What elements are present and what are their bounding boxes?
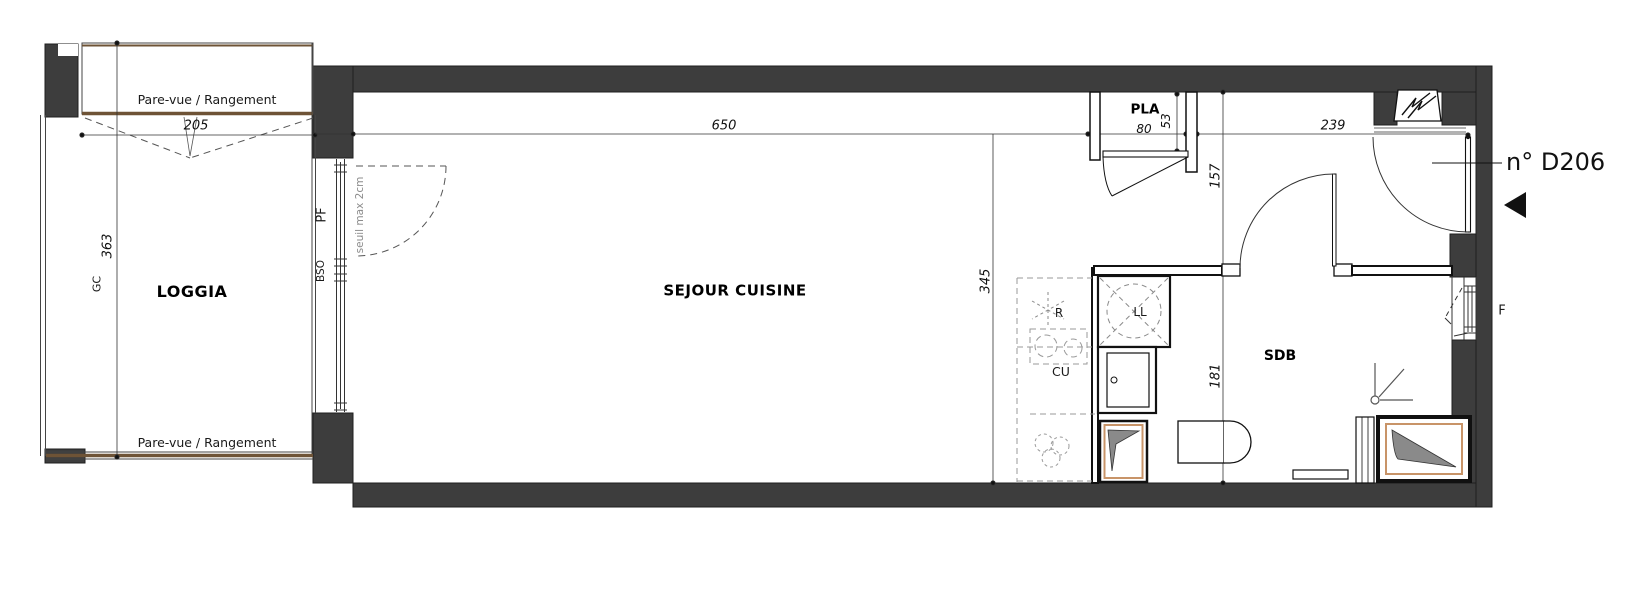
cooktop-label: CU bbox=[1052, 366, 1070, 379]
room-sdb: SDB bbox=[1264, 349, 1296, 363]
wall-right-outer bbox=[1476, 66, 1492, 507]
dim-sejour-depth: 345 bbox=[980, 269, 993, 294]
entry-door bbox=[1373, 128, 1526, 232]
dim-pla-depth: 53 bbox=[1160, 113, 1172, 128]
pf-window bbox=[334, 159, 347, 412]
wall-pillar-left-bottom bbox=[313, 413, 353, 483]
shower-valve-icon bbox=[1371, 363, 1413, 404]
entry-door-arc bbox=[1373, 137, 1468, 232]
parevue-bottom-label: Pare-vue / Rangement bbox=[138, 437, 277, 450]
wall-pillar-left-top bbox=[313, 66, 353, 158]
washbasin-inner bbox=[1107, 353, 1149, 407]
plan-drawing bbox=[0, 0, 1630, 589]
window-f bbox=[1445, 277, 1476, 340]
toilet-bowl bbox=[1224, 421, 1251, 463]
cooktop-burner-small bbox=[1064, 339, 1082, 357]
window-f-label: F bbox=[1498, 305, 1505, 318]
wall-bottom bbox=[353, 483, 1492, 507]
seuil-label: seuil max 2cm bbox=[355, 177, 366, 254]
dim-loggia-depth: 363 bbox=[102, 234, 115, 259]
sdb-door-leaf bbox=[1333, 174, 1337, 266]
pla-wall-left bbox=[1090, 92, 1100, 160]
dim-sejour-width: 650 bbox=[712, 120, 737, 133]
room-sejour-cuisine: SEJOUR CUISINE bbox=[663, 284, 806, 299]
washer-label: LL bbox=[1133, 306, 1146, 318]
electrical-panel-icon bbox=[1394, 90, 1441, 121]
pf-door-swing bbox=[356, 166, 446, 256]
sdb-door-arc bbox=[1240, 174, 1334, 268]
entry-door-hinge bbox=[1466, 135, 1470, 139]
fridge-label: R bbox=[1055, 307, 1063, 319]
sdb-door-jamb-left bbox=[1222, 264, 1240, 276]
sdb-wall-north-east bbox=[1352, 266, 1452, 275]
bso-label: BSO bbox=[316, 260, 327, 282]
pla-door-open bbox=[1112, 157, 1188, 196]
floor-plan: Pare-vue / Rangement 205 363 GC LOGGIA P… bbox=[0, 0, 1630, 589]
wall-stub bbox=[1356, 417, 1374, 483]
pf-label: PF bbox=[316, 207, 329, 222]
room-loggia: LOGGIA bbox=[157, 284, 228, 300]
wall-niche-right bbox=[1442, 92, 1476, 125]
sdb-door-jamb-right bbox=[1334, 264, 1352, 276]
entrance-arrow-icon bbox=[1504, 192, 1526, 218]
sdb-fixtures bbox=[1098, 276, 1470, 483]
toilet-tank bbox=[1178, 421, 1224, 463]
sdb-door bbox=[1240, 174, 1336, 268]
dim-entry-width: 239 bbox=[1321, 120, 1346, 133]
cooktop-burner-large bbox=[1035, 335, 1057, 357]
entry-door-leaf bbox=[1466, 137, 1471, 232]
dim-loggia-width: 205 bbox=[184, 120, 209, 133]
dim-entry-depth: 157 bbox=[1210, 164, 1223, 189]
wall-top bbox=[313, 66, 1492, 92]
pla-wall-right bbox=[1186, 92, 1197, 172]
parevue-top-label: Pare-vue / Rangement bbox=[138, 94, 277, 107]
pla-door-leaf bbox=[1103, 151, 1188, 157]
dim-sdb-depth: 181 bbox=[1210, 364, 1223, 389]
wall-right-below-door bbox=[1450, 234, 1476, 277]
wall-notch bbox=[58, 44, 78, 56]
dim-pla-width: 80 bbox=[1136, 123, 1151, 135]
unit-number-label: n° D206 bbox=[1506, 148, 1605, 176]
recycle-icon bbox=[1035, 434, 1069, 467]
sdb-wall-north-west bbox=[1094, 266, 1222, 275]
gc-label: GC bbox=[92, 276, 103, 292]
window-f-opening-dash bbox=[1445, 288, 1462, 318]
threshold-bar bbox=[1293, 470, 1348, 479]
room-pla: PLA bbox=[1131, 103, 1160, 117]
pla-door-arc bbox=[1103, 157, 1112, 196]
dimension-lines bbox=[80, 41, 1470, 485]
